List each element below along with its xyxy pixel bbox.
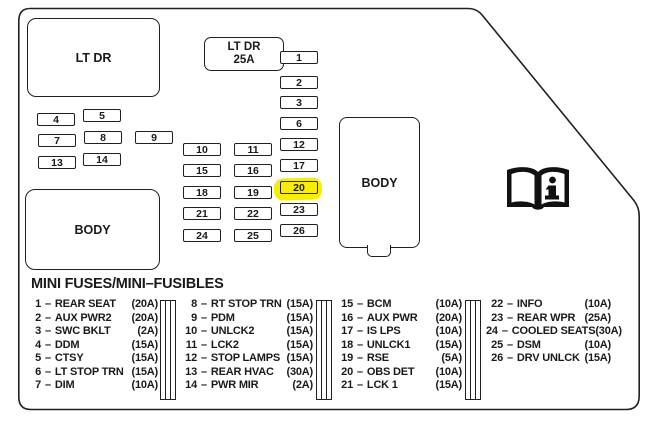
fuse-amperage: (15A) [131, 339, 158, 351]
fuse-label: IS LPS [367, 325, 401, 337]
fuse-amperage: (15A) [286, 352, 313, 364]
fuse-number: 7 [32, 379, 41, 391]
separator: – [507, 298, 513, 310]
connector-lt-dr-label: LT DR [76, 51, 112, 65]
separator: – [357, 352, 363, 364]
legend-row: 18–UNLCK1(15A) [336, 339, 462, 353]
fuse-slot-number: 24 [196, 230, 208, 242]
legend-row: 22–INFO(10A) [486, 298, 611, 312]
fuse-slot-11: 11 [234, 143, 272, 156]
fuse-label: DSM [517, 339, 541, 351]
fuse-number: 21 [336, 379, 353, 391]
fuse-slot-number: 5 [99, 110, 105, 122]
fuse-label: REAR SEAT [55, 298, 116, 310]
separator: – [201, 312, 207, 324]
fuse-number: 9 [180, 312, 197, 324]
fuse-label: OBS DET [367, 366, 415, 378]
separator: – [201, 325, 207, 337]
fuse-slot-number: 14 [96, 154, 108, 166]
fuse-amperage: (25A) [584, 312, 611, 324]
fuse-label: REAR HVAC [211, 366, 274, 378]
fuse-slot-number: 3 [296, 97, 302, 109]
separator: – [45, 325, 51, 337]
fuse-slot-5: 5 [83, 109, 121, 122]
legend-row: 14–PWR MIR(2A) [180, 379, 313, 393]
fuse-label: LCK 1 [367, 379, 398, 391]
separator: – [45, 312, 51, 324]
fuse-slot-number: 16 [247, 165, 259, 177]
fuse-label: LT STOP TRN [55, 366, 124, 378]
fuse-slot-15: 15 [183, 164, 221, 177]
fuse-label: AUX PWR [367, 312, 418, 324]
separator: – [502, 325, 508, 337]
fuse-amperage: (15A) [131, 366, 158, 378]
fuse-slot-10: 10 [183, 143, 221, 156]
fuse-slot-9: 9 [135, 131, 173, 144]
fuse-label: AUX PWR2 [55, 312, 111, 324]
separator: – [507, 312, 513, 324]
legend-row: 5–CTSY(15A) [32, 352, 158, 366]
fuse-number: 18 [336, 339, 353, 351]
fuse-number: 10 [180, 325, 197, 337]
fuse-slot-number: 12 [293, 139, 305, 151]
connector-lt-dr: LT DR [27, 18, 160, 97]
fuse-number: 11 [180, 339, 197, 351]
legend-row: 25–DSM(10A) [486, 339, 611, 353]
fuse-slot-number: 11 [247, 144, 258, 156]
fuse-label: INFO [517, 298, 542, 310]
legend-column-2: 8–RT STOP TRN(15A) 9–PDM(15A) 10–UNLCK2(… [180, 298, 313, 393]
mini-fuse-icon [465, 300, 481, 400]
fuse-slot-4: 4 [37, 113, 75, 126]
fuse-slot-number: 23 [293, 204, 305, 216]
fuse-slot-8: 8 [84, 131, 122, 144]
fuse-number: 20 [336, 366, 353, 378]
fuse-slot-14: 14 [83, 153, 121, 166]
fuse-slot-22: 22 [234, 207, 272, 220]
fuse-number: 26 [486, 352, 503, 364]
legend-row: 24–COOLED SEATS(30A) [486, 325, 611, 339]
fuse-number: 4 [32, 339, 41, 351]
fuse-slot-number: 15 [196, 165, 208, 177]
separator: – [45, 339, 51, 351]
fuse-number: 8 [180, 298, 197, 310]
connector-body-left-label: BODY [74, 223, 110, 237]
connector-body-right-label: BODY [361, 176, 397, 190]
fuse-amperage: (10A) [435, 298, 462, 310]
fuse-slot-21: 21 [183, 207, 221, 220]
fuse-amperage: (10A) [584, 298, 611, 310]
mini-fuse-icon [160, 300, 176, 400]
fuse-slot-7: 7 [38, 134, 76, 147]
fuse-amperage: (30A) [286, 366, 313, 378]
mini-fuse-icon [316, 300, 332, 400]
fuse-slot-17: 17 [280, 159, 318, 172]
fuse-number: 22 [486, 298, 503, 310]
fuse-number: 19 [336, 352, 353, 364]
fuse-slot-number: 2 [296, 77, 302, 89]
fuse-slot-number: 26 [293, 225, 305, 237]
separator: – [357, 325, 363, 337]
fuse-number: 14 [180, 379, 197, 391]
legend-row: 7–DIM(10A) [32, 379, 158, 393]
legend-column-4: 22–INFO(10A) 23–REAR WPR(25A) 24–COOLED … [486, 298, 611, 366]
fuse-label: PWR MIR [211, 379, 258, 391]
connector-lt-dr-25a: LT DR 25A [204, 37, 284, 71]
legend-row: 13–REAR HVAC(30A) [180, 366, 313, 380]
fuse-slot-13: 13 [38, 156, 76, 169]
fuse-amperage: (30A) [595, 325, 622, 337]
connector-body-right-tab [367, 245, 391, 257]
fuse-number: 15 [336, 298, 353, 310]
fuse-amperage: (15A) [286, 325, 313, 337]
open-book-info-icon [505, 165, 571, 213]
legend-row: 3–SWC BKLT(2A) [32, 325, 158, 339]
fuse-slot-16: 16 [234, 164, 272, 177]
connector-lt-dr-25a-line2: 25A [233, 54, 254, 67]
separator: – [507, 352, 513, 364]
fuse-slot-number: 1 [296, 52, 302, 64]
fuse-slot-19: 19 [234, 186, 272, 199]
separator: – [45, 352, 51, 364]
fuse-amperage: (15A) [131, 352, 158, 364]
fuse-slot-26: 26 [280, 224, 318, 237]
fuse-slot-number: 19 [247, 187, 259, 199]
legend-row: 23–REAR WPR(25A) [486, 312, 611, 326]
separator: – [357, 312, 363, 324]
fuse-amperage: (15A) [435, 379, 462, 391]
fuse-label: DDM [55, 339, 79, 351]
fuse-slot-20-highlighted: 20 [280, 181, 318, 194]
fuse-panel-diagram: LT DR LT DR 25A BODY BODY 1 2 3 6 12 17 … [0, 0, 650, 426]
fuse-amperage: (20A) [131, 298, 158, 310]
fuse-slot-number: 21 [196, 208, 208, 220]
legend-row: 16–AUX PWR(20A) [336, 312, 462, 326]
fuse-amperage: (10A) [131, 379, 158, 391]
separator: – [45, 298, 51, 310]
fuse-slot-number: 8 [100, 132, 106, 144]
fuse-slot-number: 10 [196, 144, 208, 156]
separator: – [357, 298, 363, 310]
connector-lt-dr-25a-line1: LT DR [227, 41, 260, 54]
fuse-amperage: (20A) [435, 312, 462, 324]
legend-row: 1–REAR SEAT(20A) [32, 298, 158, 312]
legend-row: 17–IS LPS(10A) [336, 325, 462, 339]
fuse-number: 24 [486, 325, 498, 337]
fuse-slot-24: 24 [183, 229, 221, 242]
fuse-slot-1: 1 [280, 51, 318, 64]
fuse-label: DRV UNLCK [517, 352, 580, 364]
fuse-slot-25: 25 [234, 229, 272, 242]
separator: – [201, 352, 207, 364]
separator: – [45, 379, 51, 391]
fuse-label: SWC BKLT [55, 325, 111, 337]
fuse-slot-number: 4 [53, 114, 59, 126]
separator: – [357, 379, 363, 391]
fuse-amperage: (2A) [137, 325, 158, 337]
fuse-number: 1 [32, 298, 41, 310]
fuse-amperage: (2A) [292, 379, 313, 391]
fuse-amperage: (15A) [286, 298, 313, 310]
fuse-label: RT STOP TRN [211, 298, 282, 310]
fuse-slot-2: 2 [280, 76, 318, 89]
legend-column-3: 15–BCM(10A) 16–AUX PWR(20A) 17–IS LPS(10… [336, 298, 462, 393]
legend-title: MINI FUSES/MINI–FUSIBLES [31, 276, 224, 292]
fuse-amperage: (10A) [435, 366, 462, 378]
fuse-slot-number: 13 [51, 157, 63, 169]
fuse-number: 23 [486, 312, 503, 324]
fuse-label: COOLED SEATS [512, 325, 596, 337]
legend-row: 21–LCK 1(15A) [336, 379, 462, 393]
legend-row: 6–LT STOP TRN(15A) [32, 366, 158, 380]
fuse-slot-number: 20 [293, 182, 305, 194]
fuse-slot-number: 18 [196, 187, 208, 199]
fuse-slot-6: 6 [280, 117, 318, 130]
legend-row: 26–DRV UNLCK(15A) [486, 352, 611, 366]
fuse-amperage: (20A) [131, 312, 158, 324]
fuse-label: CTSY [55, 352, 84, 364]
legend-row: 2–AUX PWR2(20A) [32, 312, 158, 326]
legend-row: 8–RT STOP TRN(15A) [180, 298, 313, 312]
fuse-slot-number: 17 [293, 160, 305, 172]
separator: – [357, 339, 363, 351]
legend-row: 10–UNLCK2(15A) [180, 325, 313, 339]
fuse-amperage: (15A) [584, 352, 611, 364]
fuse-slot-18: 18 [183, 186, 221, 199]
legend-row: 12–STOP LAMPS(15A) [180, 352, 313, 366]
fuse-number: 5 [32, 352, 41, 364]
fuse-slot-number: 9 [151, 132, 157, 144]
separator: – [201, 366, 207, 378]
separator: – [201, 298, 207, 310]
connector-body-left: BODY [25, 189, 160, 270]
fuse-number: 16 [336, 312, 353, 324]
fuse-label: LCK2 [211, 339, 239, 351]
fuse-slot-number: 7 [54, 135, 60, 147]
fuse-number: 2 [32, 312, 41, 324]
fuse-slot-number: 25 [247, 230, 259, 242]
fuse-amperage: (15A) [286, 312, 313, 324]
fuse-label: BCM [367, 298, 391, 310]
fuse-number: 17 [336, 325, 353, 337]
fuse-label: PDM [211, 312, 235, 324]
fuse-amperage: (10A) [584, 339, 611, 351]
legend-row: 20–OBS DET(10A) [336, 366, 462, 380]
fuse-amperage: (15A) [286, 339, 313, 351]
fuse-slot-12: 12 [280, 138, 318, 151]
fuse-amperage: (5A) [441, 352, 462, 364]
fuse-slot-3: 3 [280, 96, 318, 109]
separator: – [507, 339, 513, 351]
fuse-label: DIM [55, 379, 75, 391]
fuse-label: RSE [367, 352, 389, 364]
legend-row: 11–LCK2(15A) [180, 339, 313, 353]
fuse-number: 12 [180, 352, 197, 364]
legend-column-1: 1–REAR SEAT(20A) 2–AUX PWR2(20A) 3–SWC B… [32, 298, 158, 393]
fuse-number: 13 [180, 366, 197, 378]
fuse-slot-number: 6 [296, 118, 302, 130]
fuse-label: STOP LAMPS [211, 352, 280, 364]
fuse-number: 6 [32, 366, 41, 378]
fuse-label: REAR WPR [517, 312, 575, 324]
fuse-amperage: (15A) [435, 339, 462, 351]
legend-row: 4–DDM(15A) [32, 339, 158, 353]
fuse-label: UNLCK1 [367, 339, 410, 351]
legend-row: 15–BCM(10A) [336, 298, 462, 312]
separator: – [45, 366, 51, 378]
fuse-slot-number: 22 [247, 208, 259, 220]
fuse-slot-23: 23 [280, 203, 318, 216]
separator: – [201, 379, 207, 391]
legend-row: 19–RSE(5A) [336, 352, 462, 366]
separator: – [201, 339, 207, 351]
connector-body-right: BODY [339, 117, 420, 248]
separator: – [357, 366, 363, 378]
fuse-number: 3 [32, 325, 41, 337]
fuse-label: UNLCK2 [211, 325, 254, 337]
fuse-amperage: (10A) [435, 325, 462, 337]
fuse-number: 25 [486, 339, 503, 351]
legend-row: 9–PDM(15A) [180, 312, 313, 326]
